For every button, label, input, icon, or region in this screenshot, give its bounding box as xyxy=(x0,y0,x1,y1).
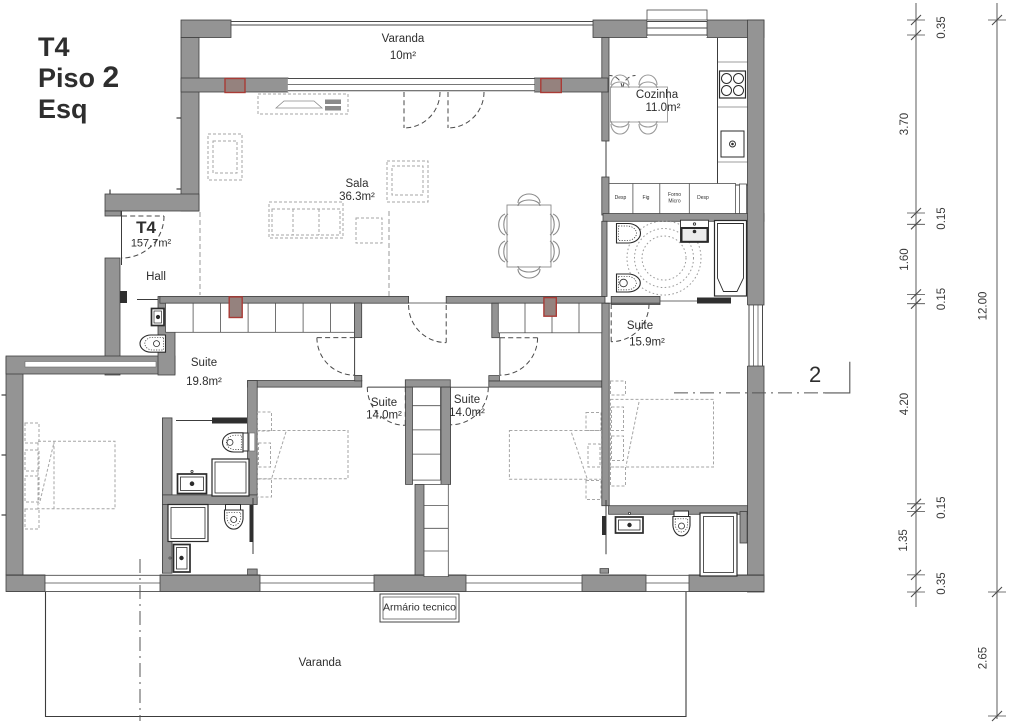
svg-text:3.70: 3.70 xyxy=(899,113,911,135)
svg-text:Suite: Suite xyxy=(371,397,397,409)
svg-text:Armário tecnico: Armário tecnico xyxy=(383,602,456,614)
svg-text:T4: T4 xyxy=(38,32,70,62)
svg-text:Forno: Forno xyxy=(668,192,681,198)
svg-text:157.7m²: 157.7m² xyxy=(131,238,172,250)
svg-text:0.15: 0.15 xyxy=(936,207,948,229)
svg-text:Desp: Desp xyxy=(615,195,627,201)
svg-text:2.65: 2.65 xyxy=(978,647,990,669)
svg-text:T4: T4 xyxy=(136,218,156,237)
svg-text:Varanda: Varanda xyxy=(299,657,342,669)
svg-text:Suite: Suite xyxy=(627,320,653,332)
svg-text:Hall: Hall xyxy=(146,271,166,283)
svg-text:Piso 2: Piso 2 xyxy=(38,61,119,94)
svg-text:0.15: 0.15 xyxy=(936,497,948,519)
svg-text:0.35: 0.35 xyxy=(936,572,948,594)
svg-text:Suite: Suite xyxy=(191,357,217,369)
svg-text:12.00: 12.00 xyxy=(978,292,990,321)
svg-text:10m²: 10m² xyxy=(390,50,416,62)
svg-text:0.35: 0.35 xyxy=(936,16,948,38)
svg-text:14.0m²: 14.0m² xyxy=(366,410,402,422)
svg-text:Varanda: Varanda xyxy=(382,33,425,45)
svg-text:1.35: 1.35 xyxy=(898,529,910,551)
svg-text:Desp: Desp xyxy=(697,195,709,201)
svg-text:Fig: Fig xyxy=(643,195,650,201)
svg-text:14.0m²: 14.0m² xyxy=(449,407,485,419)
svg-text:4.20: 4.20 xyxy=(899,393,911,415)
svg-text:2: 2 xyxy=(809,362,821,387)
svg-text:0.15: 0.15 xyxy=(936,288,948,310)
svg-text:Suite: Suite xyxy=(454,394,480,406)
svg-text:Micro: Micro xyxy=(668,199,680,205)
svg-text:1.60: 1.60 xyxy=(899,248,911,270)
svg-text:Cozinha: Cozinha xyxy=(636,89,679,101)
svg-text:36.3m²: 36.3m² xyxy=(339,191,375,203)
svg-text:19.8m²: 19.8m² xyxy=(186,376,222,388)
svg-text:Esq: Esq xyxy=(38,94,88,124)
svg-text:15.9m²: 15.9m² xyxy=(629,337,665,349)
svg-text:11.0m²: 11.0m² xyxy=(646,102,681,114)
svg-text:Sala: Sala xyxy=(345,178,369,190)
